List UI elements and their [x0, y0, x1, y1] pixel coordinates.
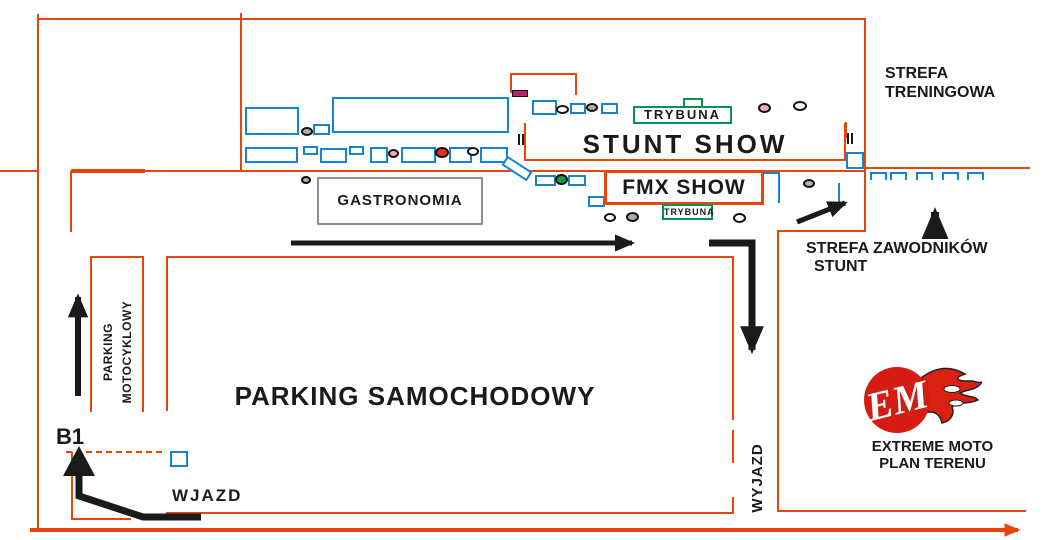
gate-b1-dashed-line — [66, 451, 162, 453]
car-parking-outline-right — [732, 497, 734, 514]
main-road-line-thick — [71, 169, 145, 173]
car-parking-outline-right — [732, 430, 734, 463]
moto-parking-outline — [90, 256, 92, 412]
moto-parking-outline — [91, 256, 143, 258]
car-parking-label: PARKING SAMOCHODOWY — [195, 381, 635, 412]
map-title: EXTREME MOTO PLAN TERENU — [850, 438, 1015, 472]
car-parking-outline-left — [166, 256, 168, 411]
stall-open-box — [942, 172, 959, 180]
obstacle-ellipse-white — [604, 213, 616, 222]
gastronomy-box: GASTRONOMIA — [317, 177, 483, 225]
structure-box — [313, 124, 330, 135]
structure-box — [245, 147, 298, 163]
structure-box — [846, 152, 864, 169]
obstacle-ellipse-white — [467, 147, 479, 156]
boundary-segment — [240, 13, 242, 171]
extreme-moto-logo: EM — [855, 362, 985, 438]
obstacle-ellipse-white — [733, 213, 746, 223]
training-zone-line2: TRENINGOWA — [885, 83, 995, 102]
moto-parking-outline — [142, 256, 144, 412]
boundary-segment — [864, 19, 866, 231]
obstacle-ellipse-pink — [388, 149, 399, 158]
gate-tick-icon — [851, 133, 853, 144]
obstacle-ellipse-gray — [626, 212, 639, 222]
structure-open-box — [762, 172, 780, 203]
structure-box — [570, 103, 586, 114]
gastronomy-label: GASTRONOMIA — [319, 179, 481, 223]
structure-box — [303, 146, 318, 155]
boundary-segment — [777, 510, 1026, 512]
entrance-lane-line — [71, 452, 73, 520]
car-parking-outline-right — [732, 256, 734, 420]
site-boundary-line-west — [37, 14, 39, 528]
obstacle-ellipse-pink — [758, 103, 771, 113]
moto-parking-label: PARKING MOTOCYKLOWY — [99, 277, 137, 427]
obstacle-ellipse-gray — [803, 179, 815, 188]
structure-box — [401, 147, 436, 163]
obstacle-ellipse-gray — [586, 103, 598, 112]
boundary-segment — [777, 230, 866, 232]
entrance-label: WJAZD — [172, 486, 242, 506]
structure-box — [588, 196, 605, 207]
obstacle-ellipse-red — [435, 147, 449, 158]
obstacle-ellipse-green — [555, 174, 568, 185]
entrance-booth-box — [170, 451, 188, 467]
car-parking-outline-bottom — [166, 512, 734, 514]
competitors-zone-line1: STREFA ZAWODNIKÓW — [806, 240, 988, 258]
flame-gap — [944, 386, 960, 393]
grandstand-lower-label: TRYBUNA — [664, 206, 711, 218]
grandstand-upper-box: TRYBUNA — [633, 106, 732, 124]
map-title-line1: EXTREME MOTO — [850, 438, 1015, 455]
boundary-segment — [70, 171, 72, 232]
car-parking-outline-top — [166, 256, 734, 258]
obstacle-ellipse-gray — [301, 176, 311, 184]
structure-box — [532, 100, 557, 115]
bracket-outline — [575, 73, 577, 95]
gate-tick-icon — [522, 134, 524, 145]
grandstand-upper-label: TRYBUNA — [635, 108, 730, 122]
obstacle-ellipse-gray — [301, 127, 313, 136]
obstacle-ellipse-white — [556, 105, 569, 114]
competitors-zone-label: STREFA ZAWODNIKÓW STUNT — [806, 240, 988, 276]
structure-line — [838, 183, 840, 210]
structure-box — [332, 97, 509, 133]
structure-box — [568, 175, 586, 186]
gate-tick-icon — [847, 133, 849, 144]
structure-box — [535, 175, 556, 186]
site-boundary-line-north — [38, 18, 866, 20]
fmx-show-box: FMX SHOW — [604, 170, 764, 205]
boundary-segment — [0, 170, 38, 172]
stall-open-box — [967, 172, 984, 180]
structure-box — [245, 107, 299, 135]
structure-box — [601, 103, 618, 114]
training-zone-line1: STREFA — [885, 64, 995, 83]
gate-b1-label: B1 — [56, 424, 84, 450]
entrance-lane-line — [71, 518, 131, 520]
exit-flow-arrow-south-icon — [709, 243, 752, 350]
marker-bar — [512, 90, 528, 97]
moto-parking-line1: PARKING — [99, 277, 118, 427]
structure-box — [370, 147, 388, 163]
boundary-segment — [777, 231, 779, 511]
stunt-show-label: STUNT SHOW — [525, 129, 845, 160]
boundary-segment — [866, 167, 1030, 169]
structure-box — [349, 146, 364, 155]
training-zone-label: STREFA TRENINGOWA — [885, 64, 995, 102]
moto-parking-line2: MOTOCYKLOWY — [118, 277, 137, 427]
gate-tick-icon — [518, 134, 520, 145]
map-title-line2: PLAN TERENU — [850, 455, 1015, 472]
obstacle-ellipse-white — [793, 101, 807, 111]
flame-gap — [949, 400, 963, 406]
competitors-zone-line2: STUNT — [814, 258, 988, 276]
grandstand-lower-box: TRYBUNA — [662, 204, 713, 220]
fmx-show-label: FMX SHOW — [607, 173, 761, 202]
stall-open-box — [916, 172, 933, 180]
bracket-outline — [510, 73, 577, 75]
stall-open-box — [890, 172, 907, 180]
stall-open-box — [870, 172, 887, 180]
structure-box — [320, 148, 347, 163]
event-terrain-map: FMX SHOW TRYBUNA TRYBUNA GASTRONOMIA STU… — [0, 0, 1045, 540]
exit-label: WYJAZD — [750, 438, 766, 518]
